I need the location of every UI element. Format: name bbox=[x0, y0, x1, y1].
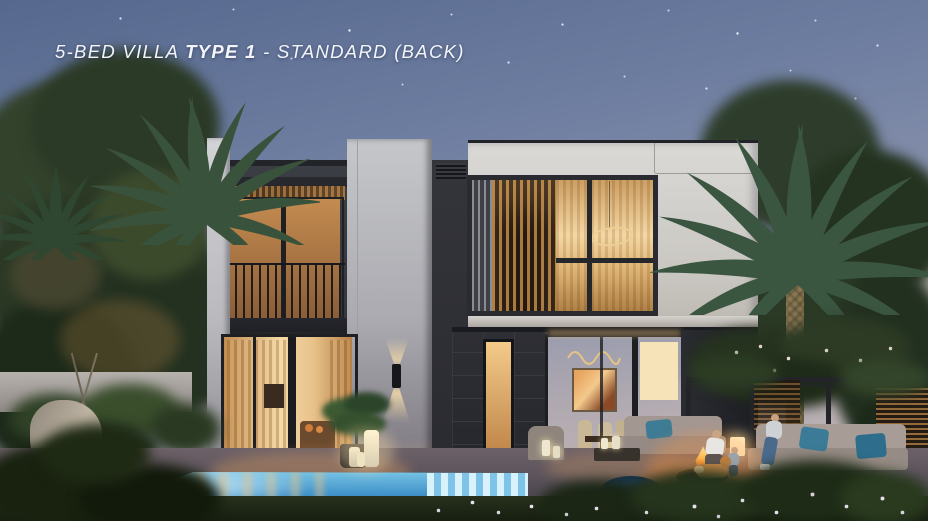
villa-back-elevation-render: 5-BED VILLA TYPE 1 - STANDARD (BACK) bbox=[0, 0, 928, 521]
caption-suffix: - STANDARD (BACK) bbox=[257, 41, 465, 62]
teal-cushion-2 bbox=[799, 426, 830, 452]
image-caption: 5-BED VILLA TYPE 1 - STANDARD (BACK) bbox=[55, 41, 465, 63]
table-candle-2 bbox=[612, 436, 620, 449]
teal-cushion bbox=[645, 419, 673, 440]
pergola-vines-2 bbox=[840, 360, 928, 396]
right-palm-crown bbox=[650, 55, 928, 315]
upper-window-mullion-v bbox=[587, 180, 592, 311]
floor-lantern-mini bbox=[357, 452, 365, 467]
upper-window-mullion-h bbox=[556, 258, 653, 263]
balcony-railing bbox=[211, 263, 345, 321]
floor-lantern-tall bbox=[364, 430, 379, 467]
dining-soffit-glow bbox=[548, 330, 681, 336]
table-candle bbox=[601, 438, 608, 449]
left-tree-uplight-glow bbox=[60, 300, 180, 380]
upper-window-wood-louvers bbox=[492, 180, 556, 311]
left-foreground-bush bbox=[0, 424, 220, 521]
pergola-vines bbox=[690, 356, 780, 390]
left-palm-crown-small bbox=[0, 140, 130, 260]
upper-window-silver-louvers bbox=[472, 180, 492, 311]
right-flowerbed bbox=[540, 452, 928, 521]
chandelier-cord bbox=[609, 181, 610, 228]
roof-louver-vent bbox=[436, 163, 466, 179]
caption-prefix: 5-BED VILLA bbox=[55, 41, 185, 62]
wall-light-fixture bbox=[392, 364, 401, 388]
flower-dots bbox=[0, 0, 1, 1]
caption-type: TYPE 1 bbox=[185, 41, 257, 62]
